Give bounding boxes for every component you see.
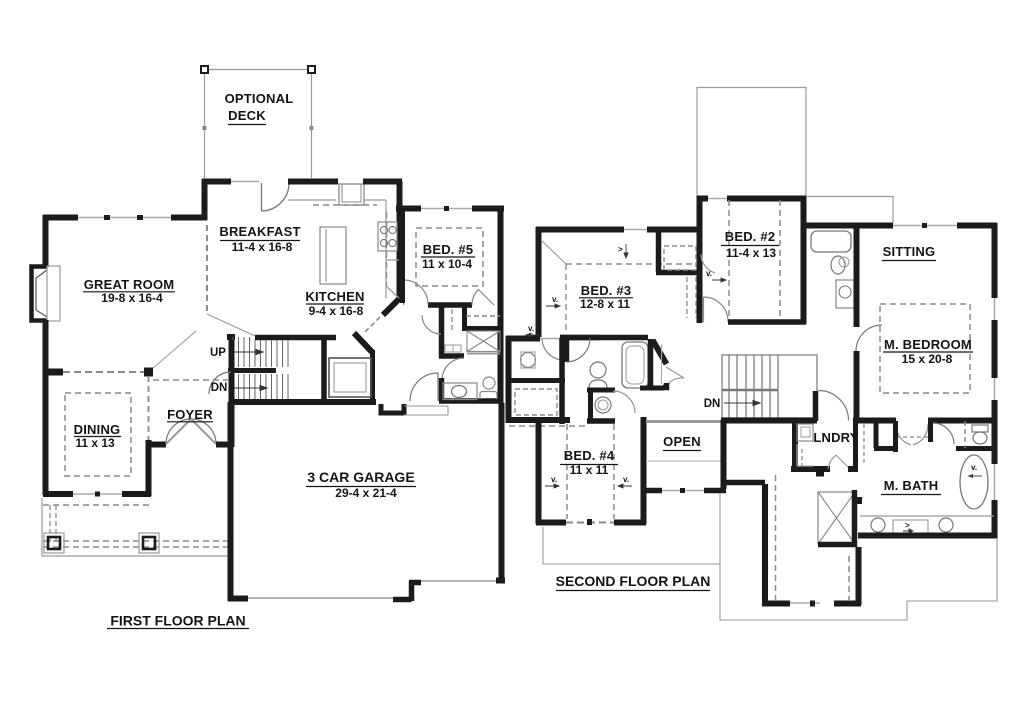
svg-text:BED. #4: BED. #4 <box>564 448 615 463</box>
svg-text:M. BEDROOM: M. BEDROOM <box>884 337 972 352</box>
svg-text:OPEN: OPEN <box>663 434 701 449</box>
svg-text:KITCHEN: KITCHEN <box>305 289 364 304</box>
svg-text:9-4 x 16-8: 9-4 x 16-8 <box>309 304 364 318</box>
svg-text:v.: v. <box>528 324 534 333</box>
svg-text:>: > <box>618 245 623 254</box>
svg-text:DN: DN <box>704 398 721 410</box>
svg-text:11-4 x 16-8: 11-4 x 16-8 <box>232 240 293 254</box>
svg-text:M. BATH: M. BATH <box>884 478 939 493</box>
svg-text:DECK: DECK <box>228 108 266 123</box>
svg-text:11 x 11: 11 x 11 <box>570 463 609 477</box>
svg-text:FIRST FLOOR PLAN: FIRST FLOOR PLAN <box>110 613 245 629</box>
svg-text:UP: UP <box>210 347 226 359</box>
svg-text:15 x 20-8: 15 x 20-8 <box>902 352 953 366</box>
svg-text:v.: v. <box>552 295 558 304</box>
svg-text:BED. #3: BED. #3 <box>581 283 632 298</box>
svg-text:BREAKFAST: BREAKFAST <box>219 224 300 239</box>
svg-text:11 x 13: 11 x 13 <box>75 436 115 450</box>
svg-text:SITTING: SITTING <box>883 244 936 259</box>
svg-text:v.: v. <box>551 475 557 484</box>
svg-text:LNDRY: LNDRY <box>813 430 858 445</box>
svg-text:v.: v. <box>971 463 977 472</box>
svg-text:19-8 x 16-4: 19-8 x 16-4 <box>101 291 163 305</box>
svg-text:DN: DN <box>211 382 228 394</box>
svg-text:OPTIONAL: OPTIONAL <box>225 91 294 106</box>
svg-text:SECOND FLOOR PLAN: SECOND FLOOR PLAN <box>556 573 711 589</box>
svg-text:29-4 x 21-4: 29-4 x 21-4 <box>335 486 397 500</box>
svg-text:BED. #2: BED. #2 <box>725 229 776 244</box>
svg-text:12-8 x 11: 12-8 x 11 <box>580 297 630 311</box>
svg-text:BED. #5: BED. #5 <box>423 242 474 257</box>
svg-text:DINING: DINING <box>74 422 121 437</box>
svg-text:11-4 x 13: 11-4 x 13 <box>726 246 776 260</box>
svg-text:v.: v. <box>623 475 629 484</box>
svg-text:v.: v. <box>706 269 712 278</box>
svg-text:FOYER: FOYER <box>167 407 213 422</box>
svg-text:3 CAR GARAGE: 3 CAR GARAGE <box>307 469 414 485</box>
svg-text:11 x 10-4: 11 x 10-4 <box>422 257 472 271</box>
svg-text:GREAT ROOM: GREAT ROOM <box>84 277 175 292</box>
